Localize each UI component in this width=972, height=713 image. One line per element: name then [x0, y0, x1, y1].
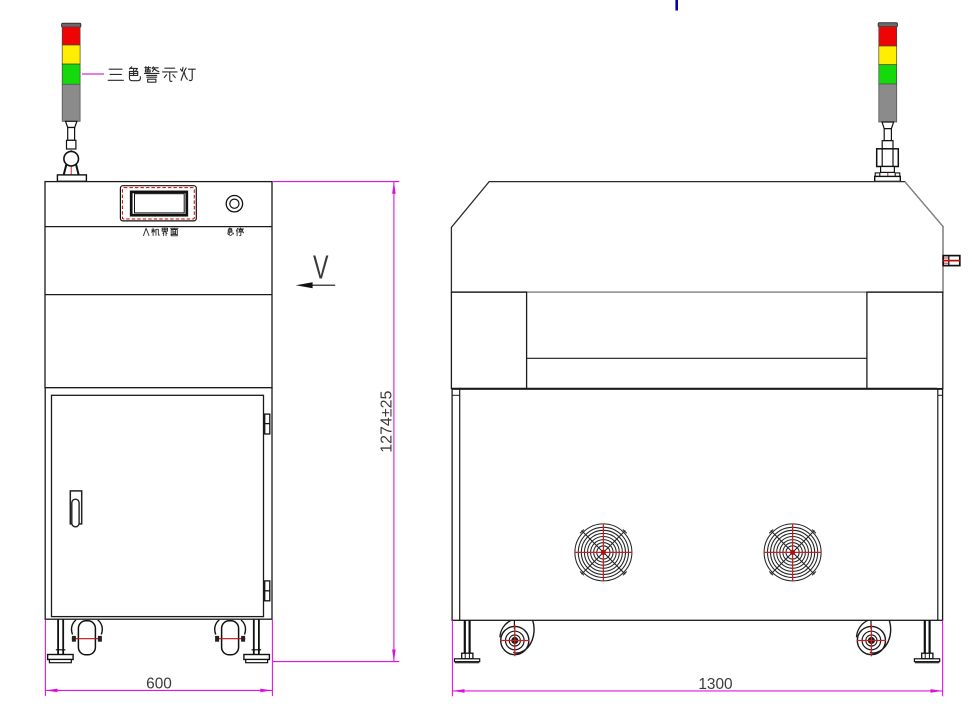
- svg-text:1274±25: 1274±25: [378, 391, 395, 453]
- svg-text:600: 600: [146, 676, 172, 693]
- svg-text:V: V: [313, 250, 329, 287]
- svg-text:1300: 1300: [698, 676, 732, 693]
